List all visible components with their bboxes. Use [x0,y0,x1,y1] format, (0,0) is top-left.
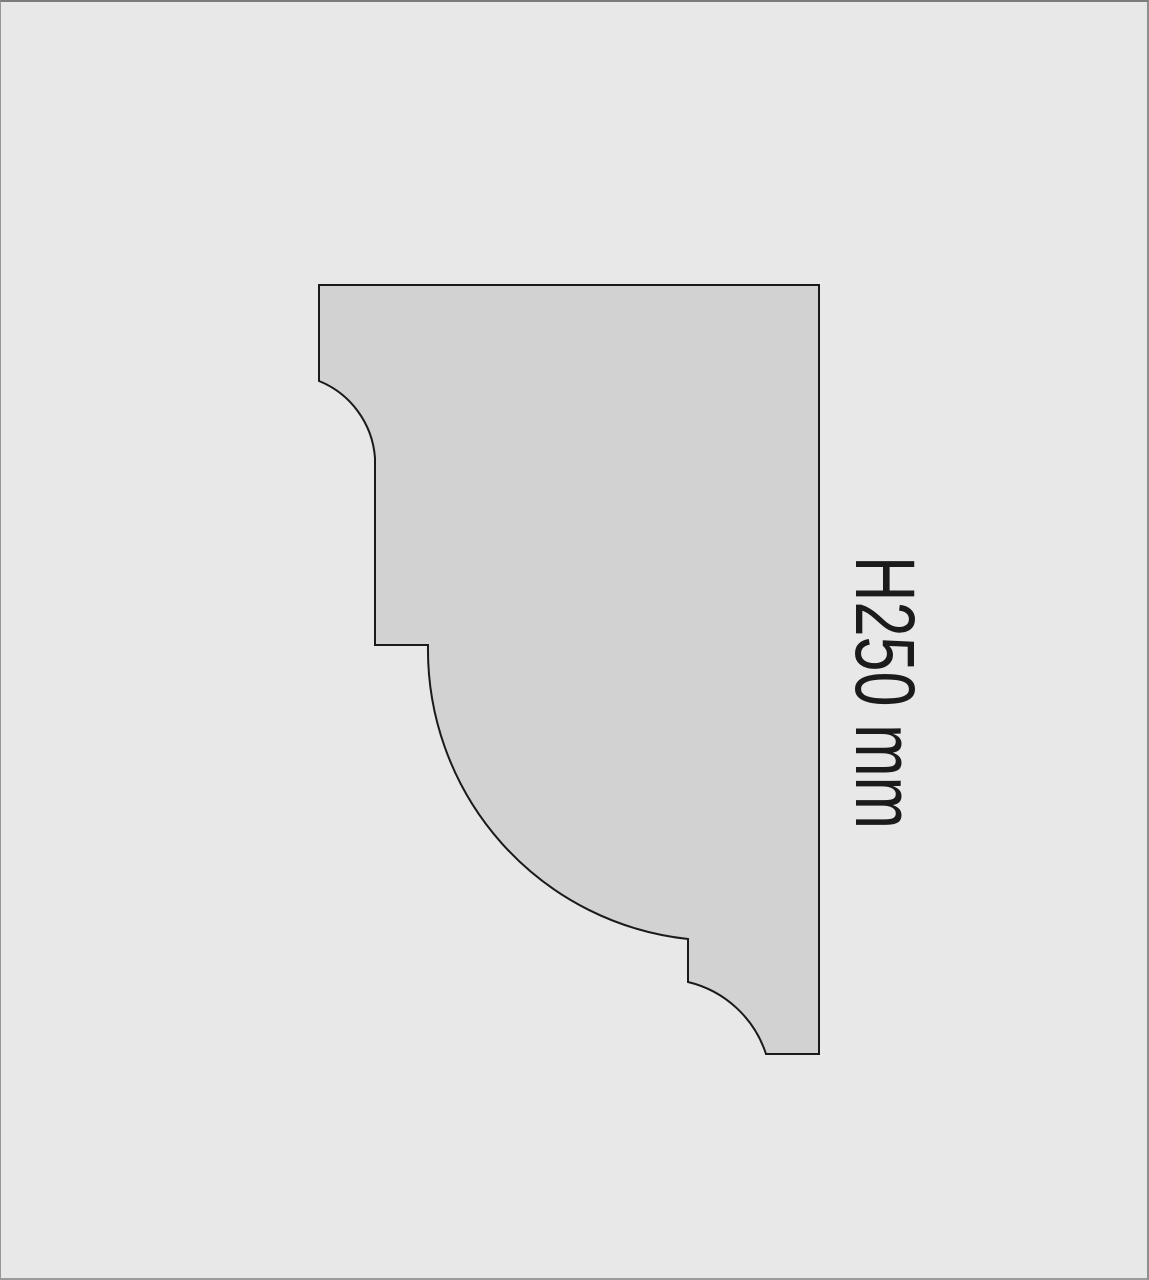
molding-profile-diagram: H250 mm [0,0,1149,1280]
profile-drawing-canvas: H250 mm [0,0,1149,1280]
molding-profile-shape [319,285,819,1054]
height-dimension-label: H250 mm [838,556,932,829]
